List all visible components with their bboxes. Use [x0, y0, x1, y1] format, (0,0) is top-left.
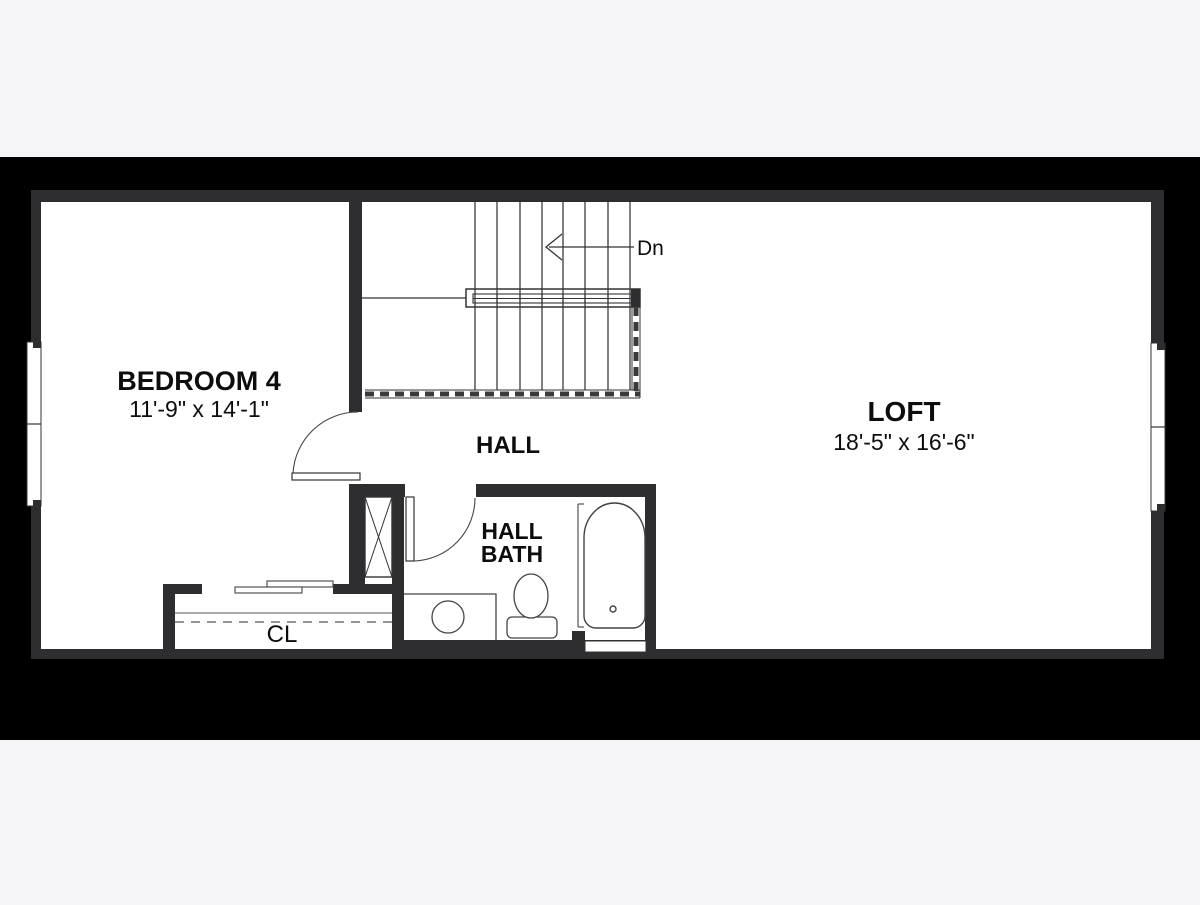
window-right — [1151, 343, 1165, 511]
sink-icon — [432, 601, 464, 633]
wall-bath-top-left — [349, 484, 405, 497]
window-left — [27, 342, 41, 506]
loft-dimensions: 18'-5" x 16'-6" — [833, 429, 974, 455]
mechanical-chase — [365, 497, 392, 577]
door-leaf — [406, 497, 414, 561]
bedroom-dimensions: 11'-9" x 14'-1" — [129, 396, 269, 422]
hall-bath-label-line2: BATH — [481, 541, 543, 567]
wall-tub-step — [572, 631, 585, 650]
railing-end-cap — [631, 289, 640, 307]
toilet-bowl — [514, 574, 548, 618]
hall-label: HALL — [476, 432, 540, 459]
door-leaf — [292, 473, 360, 480]
wall-bedroom-lower — [349, 488, 365, 594]
wall-bath-top-right — [476, 484, 656, 497]
loft-label: LOFT — [867, 396, 940, 427]
stair-direction-label: Dn — [637, 237, 664, 260]
wall-closet-right — [333, 584, 394, 594]
wall-bath-loft — [645, 497, 656, 649]
wall-closet-bath — [392, 497, 404, 649]
bathtub — [578, 503, 645, 628]
sliding-door-panel — [267, 581, 333, 587]
sliding-door-panel — [235, 587, 302, 593]
wall-bedroom-stairs — [349, 202, 362, 412]
tub-drain-icon — [610, 606, 616, 612]
wall-closet-left — [163, 592, 175, 649]
window-bath-bottom — [585, 641, 646, 652]
bedroom-label: BEDROOM 4 — [117, 366, 281, 396]
closet-label: CL — [267, 621, 298, 648]
floor-plan-drawing: Dn CL — [0, 0, 1200, 900]
floor-plan-canvas: Dn CL — [0, 0, 1200, 900]
toilet-tank — [507, 617, 557, 638]
